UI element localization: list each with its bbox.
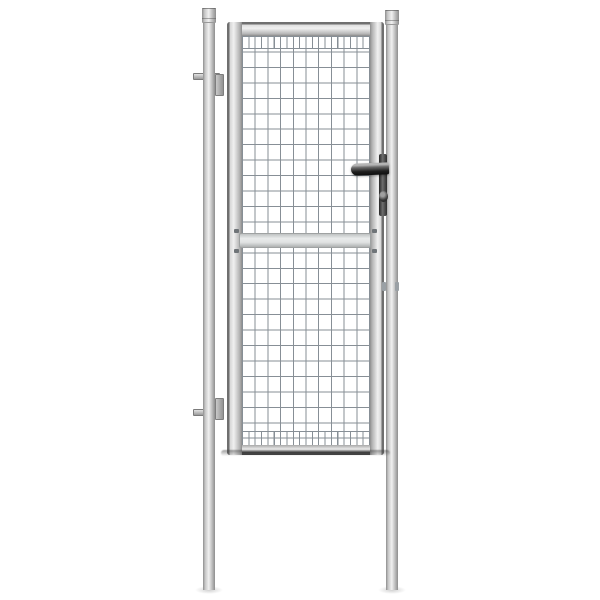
lock-cylinder <box>379 191 388 202</box>
crossbar-clip <box>372 229 377 233</box>
right-post <box>386 22 398 590</box>
latch-keeper-clip <box>382 282 386 291</box>
left-post-cap <box>202 8 216 23</box>
product-photo-garden-gate <box>0 0 600 600</box>
mesh-dense-top-row <box>242 36 370 49</box>
crossbar-clip <box>234 249 239 253</box>
right-post-cap <box>385 10 399 25</box>
frame-tube-right <box>370 22 384 455</box>
bottom-hinge-plate <box>215 398 224 420</box>
lever-handle <box>351 162 389 175</box>
latch-keeper-clip <box>395 282 399 291</box>
crossbar-clip <box>234 229 239 233</box>
top-hinge-plate <box>215 74 224 96</box>
middle-crossbar <box>239 233 371 248</box>
left-post <box>203 20 215 590</box>
frame-bottom-shadow <box>221 450 390 456</box>
crossbar-clip <box>372 249 377 253</box>
mesh-dense-bottom-row <box>242 431 370 445</box>
frame-tube-top <box>227 22 384 36</box>
